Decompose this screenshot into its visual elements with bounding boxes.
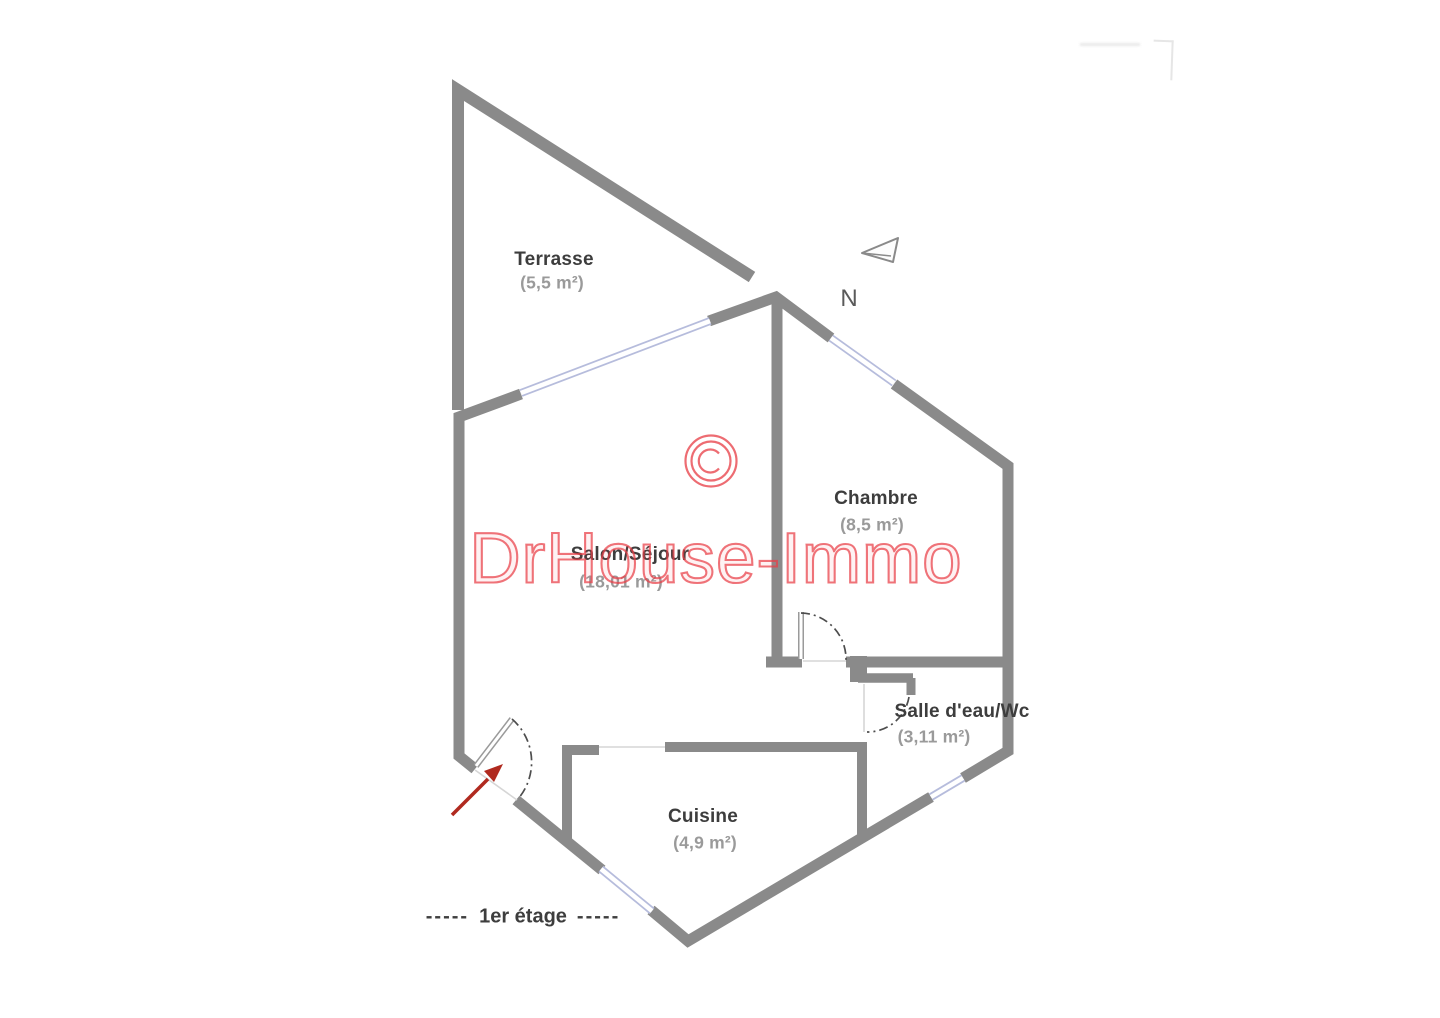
wall-kitchen-left xyxy=(567,750,599,841)
room-label-chambre: Chambre xyxy=(834,488,918,510)
room-label-terrasse: Terrasse xyxy=(514,249,593,271)
north-label: N xyxy=(840,285,857,313)
chambre-door-arc xyxy=(801,613,846,660)
wall-apex xyxy=(709,297,831,338)
scan-artifact-corner xyxy=(1152,40,1173,81)
room-area-salle-deau: (3,11 m²) xyxy=(898,727,971,748)
entry-door-arc xyxy=(512,719,532,799)
scan-artifact-smudge xyxy=(1080,43,1140,46)
room-label-salle-deau: Salle d'eau/Wc xyxy=(894,701,1029,723)
watermark-text: DrHouse-Immo xyxy=(469,519,962,600)
room-area-terrasse: (5,5 m²) xyxy=(520,273,584,294)
room-label-cuisine: Cuisine xyxy=(668,806,738,828)
room-area-cuisine: (4,9 m²) xyxy=(673,833,737,854)
copyright-icon xyxy=(686,436,737,487)
floor-label: -----1er étage----- xyxy=(416,906,630,929)
door-openings xyxy=(475,661,864,800)
floor-label-text: 1er étage xyxy=(479,906,567,928)
floor-label-dashes-right: ----- xyxy=(577,906,620,928)
floor-label-dashes-left: ----- xyxy=(426,906,469,928)
north-arrow-icon xyxy=(862,238,898,262)
floor-plan-drawing xyxy=(0,0,1440,1018)
floor-plan-page: Terrasse (5,5 m²) Salon/Séjour (18,01 m²… xyxy=(0,0,1440,1018)
wall-bottom-left xyxy=(516,800,602,870)
